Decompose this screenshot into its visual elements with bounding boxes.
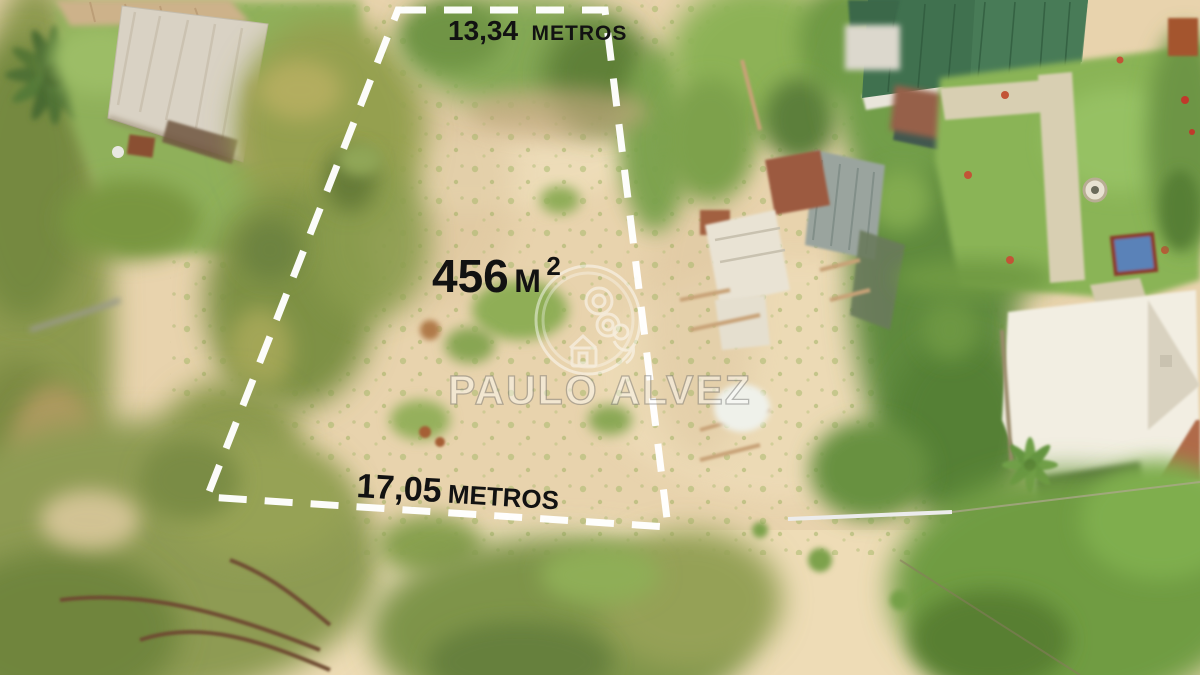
watermark-text: PAULO ALVEZ <box>448 367 752 413</box>
aerial-photo: PAULO ALVEZ 13,34 METROS 456 M 2 17,05 M… <box>0 0 1200 675</box>
top-measurement-value: 13,34 <box>448 15 518 46</box>
area-unit: M <box>514 263 541 299</box>
rust-roof <box>765 150 830 215</box>
bottom-measurement-value: 17,05 <box>356 467 443 510</box>
area-number: 456 <box>432 250 509 302</box>
top-measurement-unit: METROS <box>532 22 628 45</box>
blue-garden-item <box>1112 234 1156 274</box>
area-exponent: 2 <box>546 251 560 281</box>
